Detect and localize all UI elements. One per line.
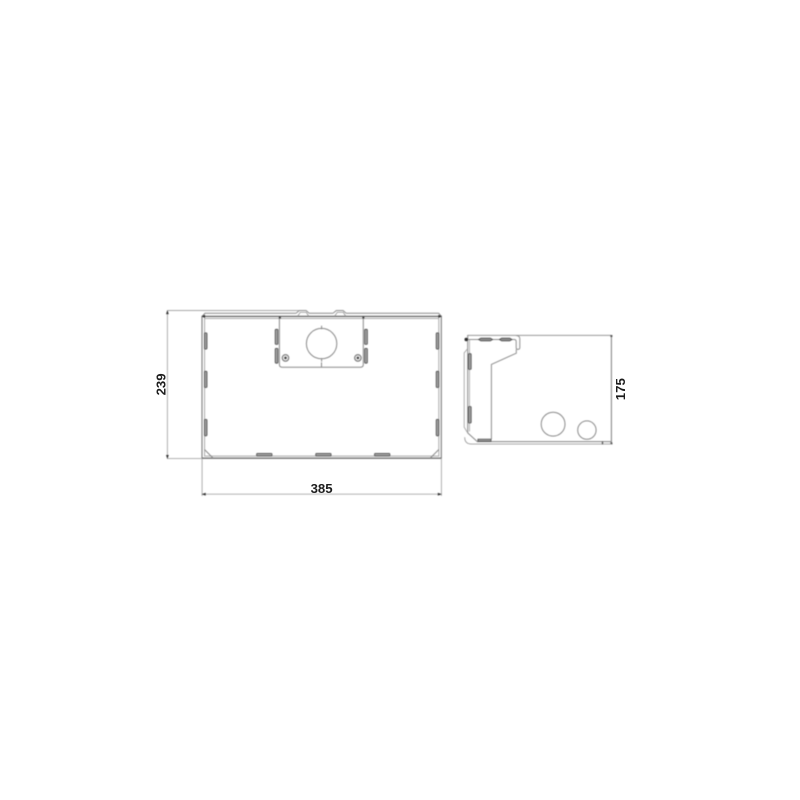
svg-text:385: 385 bbox=[311, 481, 333, 496]
svg-text:239: 239 bbox=[154, 373, 169, 395]
svg-text:175: 175 bbox=[613, 378, 628, 400]
